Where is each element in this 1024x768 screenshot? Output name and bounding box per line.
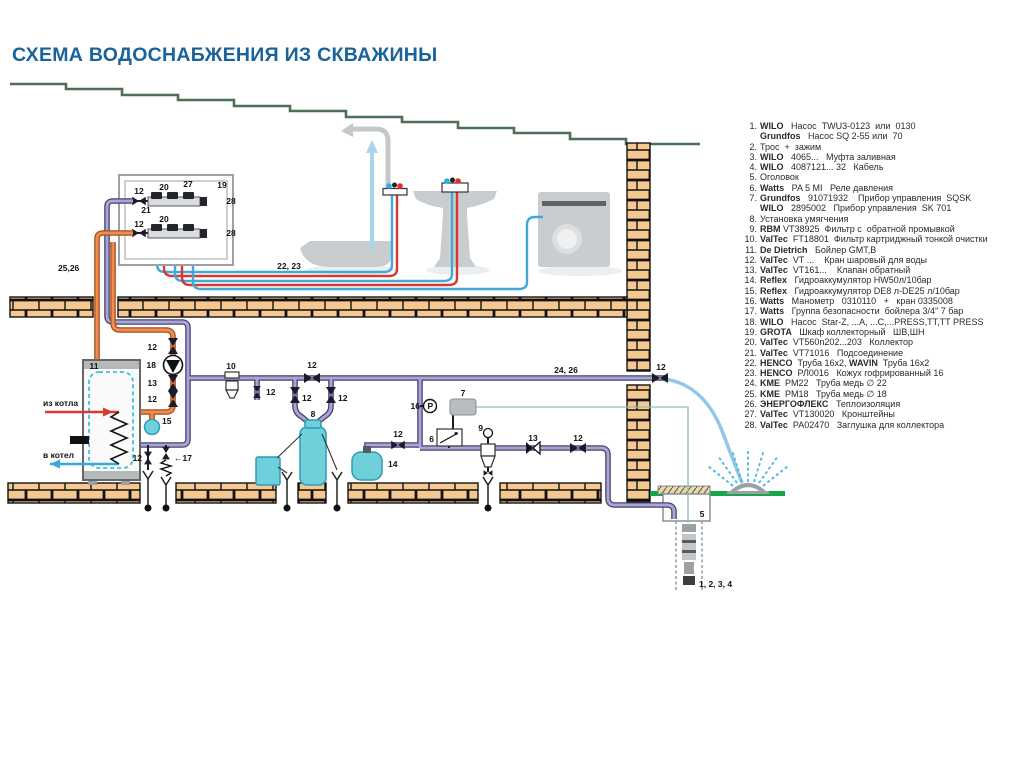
legend-item-text: Watts PA 5 MI Реле давления: [760, 183, 893, 193]
diagram-label: 1, 2, 3, 4: [699, 579, 732, 589]
legend-item-number: 4.: [740, 162, 757, 172]
legend-item-text: Grundfos 91071932 Прибор управления SQSK…: [760, 193, 971, 214]
legend-item: 23.HENCO РЛ0016 Кожух гофрированный 16: [740, 368, 1024, 378]
legend-item: 12.ValTec VT ... Кран шаровый для воды: [740, 255, 1024, 265]
diagram-label: 10: [226, 361, 236, 371]
legend-item: 10.ValTec FT18801 Фильтр картриджный тон…: [740, 234, 1024, 244]
legend-item-number: 19.: [740, 327, 757, 337]
legend-item-number: 10.: [740, 234, 757, 244]
diagram-label: ←17: [174, 453, 192, 463]
legend-item-number: 26.: [740, 399, 757, 409]
legend-item: 7.Grundfos 91071932 Прибор управления SQ…: [740, 193, 1024, 214]
legend-item: 9.RBM VT38925 Фильтр с обратной промывко…: [740, 224, 1024, 234]
legend-item: 6.Watts PA 5 MI Реле давления: [740, 183, 1024, 193]
legend-item: 18.WILO Насос Star-Z, ...A, ...C,...PRES…: [740, 317, 1024, 327]
diagram-label: из котла: [43, 398, 78, 408]
sink-pedestal: [434, 215, 476, 267]
legend-item-number: 16.: [740, 296, 757, 306]
hydro-accumulator-14: [352, 452, 382, 480]
floor-lower-4: [348, 483, 478, 503]
backwash-filter-9: [481, 429, 495, 476]
diagram-label: 13: [148, 378, 158, 388]
legend-item-text: HENCO Труба 16х2, WAVIN Труба 16х2: [760, 358, 929, 368]
diagram-label: 22, 23: [277, 261, 301, 271]
safety-valve-icon: [162, 447, 170, 460]
softener-head: [305, 420, 321, 428]
shower-head: [341, 123, 353, 137]
legend-item-text: KME PM22 Труба медь ∅ 22: [760, 378, 887, 388]
diagram-label: P: [427, 401, 433, 411]
diagram-label: 12: [338, 393, 348, 403]
legend-item-number: 6.: [740, 183, 757, 193]
diagram-label: в котел: [43, 450, 74, 460]
garden-hose: [664, 379, 742, 483]
legend-item-number: 22.: [740, 358, 757, 368]
diagram-label: 28: [226, 196, 236, 206]
diagram-label: 12: [307, 360, 317, 370]
diagram-label: 15: [162, 416, 172, 426]
legend-item: 13.ValTec VT161... Клапан обратный: [740, 265, 1024, 275]
diagram-label: 12: [148, 342, 158, 352]
legend-item-text: Установка умягчения: [760, 214, 848, 224]
legend-item-text: WILO 4065... Муфта заливная: [760, 152, 896, 162]
fixtures: [300, 123, 622, 276]
sink-bowl: [413, 191, 497, 215]
diagram-label: 25,26: [58, 263, 80, 273]
legend-item: 19.GROTA Шкаф коллекторный ШВ,ШН: [740, 327, 1024, 337]
legend-item: 21.ValTec VT71016 Подсоединение: [740, 348, 1024, 358]
legend-item: 2.Трос + зажим: [740, 142, 1024, 152]
legend-item-text: ValTec VT560n202...203 Коллектор: [760, 337, 913, 347]
parts-legend: 1.WILO Насос TWU3-0123 или 0130Grundfos …: [740, 121, 1024, 430]
softener-tank: [300, 427, 326, 485]
cartridge-filter-10: [225, 372, 239, 398]
legend-item: 11.De Dietrich Бойлер GMT,B: [740, 245, 1024, 255]
manifold-plug: [200, 229, 207, 238]
legend-item: 5.Оголовок: [740, 172, 1024, 182]
diagram-label: 12: [393, 429, 403, 439]
diagram-label: 24, 26: [554, 365, 578, 375]
legend-item: 1.WILO Насос TWU3-0123 или 0130Grundfos …: [740, 121, 1024, 142]
diagram-label: 12: [133, 453, 143, 463]
legend-item-text: Watts Манометр 0310110 + кран 0335008: [760, 296, 953, 306]
floor-lower-5: [500, 483, 601, 503]
brine-tank: [256, 457, 280, 485]
sensor-pocket: [70, 436, 89, 444]
outdoor-valve-icon: [652, 373, 668, 383]
roof-line: [10, 84, 700, 144]
legend-item-text: Трос + зажим: [760, 142, 821, 152]
spring-icon: [161, 460, 171, 476]
legend-item-number: 7.: [740, 193, 757, 214]
check-valve-13: [526, 442, 540, 454]
legend-item-text: ValTec VT71016 Подсоединение: [760, 348, 903, 358]
legend-item: 26.ЭНЕРГОФЛЕКС Теплоизоляция: [740, 399, 1024, 409]
legend-item: 3.WILO 4065... Муфта заливная: [740, 152, 1024, 162]
legend-item-text: Оголовок: [760, 172, 799, 182]
diagram-label: 27: [183, 179, 193, 189]
floor-upper-left: [10, 297, 93, 317]
legend-item: 15.Reflex Гидроаккумулятор DE8 л-DE25 л/…: [740, 286, 1024, 296]
legend-item: 16.Watts Манометр 0310110 + кран 0335008: [740, 296, 1024, 306]
ball-valve-icon: [290, 387, 300, 403]
legend-item: 8.Установка умягчения: [740, 214, 1024, 224]
diagram-label: 11: [90, 361, 99, 371]
legend-item-text: Watts Группа безопасности бойлера 3/4" 7…: [760, 306, 963, 316]
diagram-label: 14: [388, 459, 398, 469]
legend-item-text: Reflex Гидроаккумулятор HW50л/10бар: [760, 275, 932, 285]
legend-item-number: 27.: [740, 409, 757, 419]
diagram-label: 13: [528, 433, 538, 443]
shower-flow-arrow: [366, 140, 378, 153]
legend-item: 24.KME PM22 Труба медь ∅ 22: [740, 378, 1024, 388]
legend-item-text: Reflex Гидроаккумулятор DE8 л-DE25 л/10б…: [760, 286, 960, 296]
legend-item-number: 15.: [740, 286, 757, 296]
diagram-label: 21: [141, 205, 151, 215]
softener-unit: [256, 420, 337, 485]
floor-lower-3: [298, 483, 326, 503]
ball-valve-icon: [326, 387, 336, 403]
diagram-label: 8: [311, 409, 316, 419]
right-wall-upper: [627, 143, 650, 371]
floor-lower-1: [8, 483, 140, 503]
ball-valve-icon: [570, 443, 586, 453]
ball-valve-icon: [168, 338, 178, 354]
diagram-label: 7: [461, 388, 466, 398]
diagram-label: 12: [573, 433, 583, 443]
pressure-switch-6: [437, 429, 462, 448]
legend-item-text: De Dietrich Бойлер GMT,B: [760, 245, 876, 255]
legend-item: 4.WILO 4087121... 32 Кабель: [740, 162, 1024, 172]
diagram-label: 16: [411, 401, 421, 411]
legend-item: 17.Watts Группа безопасности бойлера 3/4…: [740, 306, 1024, 316]
sink-mixer: [442, 178, 468, 193]
legend-item-number: 5.: [740, 172, 757, 182]
right-wall-lower: [627, 385, 650, 502]
drain-valve-icon: [144, 452, 152, 465]
legend-item-number: 14.: [740, 275, 757, 285]
legend-item-number: 8.: [740, 214, 757, 224]
diagram-label: 20: [159, 214, 169, 224]
legend-item-text: RBM VT38925 Фильтр с обратной промывкой: [760, 224, 955, 234]
legend-item-text: ValTec FT18801 Фильтр картриджный тонкой…: [760, 234, 988, 244]
legend-item-text: ЭНЕРГОФЛЕКС Теплоизоляция: [760, 399, 900, 409]
legend-item-number: 13.: [740, 265, 757, 275]
expansion-vessel-15: [145, 420, 160, 435]
legend-item-number: 28.: [740, 420, 757, 430]
legend-item-number: 20.: [740, 337, 757, 347]
legend-item-text: WILO Насос Star-Z, ...A, ...C,...PRESS,T…: [760, 317, 983, 327]
diagram-label: 28: [226, 228, 236, 238]
legend-item-number: 2.: [740, 142, 757, 152]
ball-valve-icon: [391, 441, 405, 450]
diagram-label: 18: [147, 360, 157, 370]
legend-item: 25.KME PM18 Труба медь ∅ 18: [740, 389, 1024, 399]
ball-valve-icon: [168, 391, 178, 407]
legend-item-number: 9.: [740, 224, 757, 234]
legend-item: 20.ValTec VT560n202...203 Коллектор: [740, 337, 1024, 347]
check-valve-icon: [168, 375, 178, 391]
bathtub: [300, 241, 392, 267]
legend-item-text: ValTec PA02470 Заглушка для коллектора: [760, 420, 944, 430]
water-spray: [708, 448, 788, 486]
pit-cover-hatch: [658, 486, 710, 494]
legend-item-text: ValTec VT130020 Кронштейны: [760, 409, 895, 419]
page: СХЕМА ВОДОСНАБЖЕНИЯ ИЗ СКВАЖИНЫ: [0, 0, 1024, 768]
legend-item-text: ValTec VT161... Клапан обратный: [760, 265, 910, 275]
controller-7: [450, 399, 476, 430]
floor-upper-main: [118, 297, 627, 317]
diagram-label: 12: [134, 186, 144, 196]
legend-item-number: 21.: [740, 348, 757, 358]
sprinkler: [708, 448, 788, 493]
legend-item-number: 3.: [740, 152, 757, 162]
legend-item-text: WILO 4087121... 32 Кабель: [760, 162, 884, 172]
legend-item-number: 24.: [740, 378, 757, 388]
legend-item-number: 12.: [740, 255, 757, 265]
legend-item-number: 11.: [740, 245, 757, 255]
legend-item-number: 23.: [740, 368, 757, 378]
boiler-safety-group: [144, 445, 171, 476]
legend-item-text: GROTA Шкаф коллекторный ШВ,ШН: [760, 327, 925, 337]
diagram-label: 12: [148, 394, 158, 404]
legend-item: 22.HENCO Труба 16х2, WAVIN Труба 16х2: [740, 358, 1024, 368]
diagram-label: 5: [700, 509, 705, 519]
flow-arrow-left: [50, 460, 60, 469]
legend-item-number: 1.: [740, 121, 757, 142]
diagram-label: 12: [302, 393, 312, 403]
vessel-nipple: [363, 446, 371, 453]
legend-item-text: WILO Насос TWU3-0123 или 0130Grundfos На…: [760, 121, 915, 142]
legend-item: 28.ValTec PA02470 Заглушка для коллектор…: [740, 420, 1024, 430]
diagram-label: 6: [429, 434, 434, 444]
main-line-components: [225, 372, 668, 476]
diagram-label: 12: [656, 362, 666, 372]
legend-item-text: HENCO РЛ0016 Кожух гофрированный 16: [760, 368, 943, 378]
diagram-label: 9: [478, 423, 483, 433]
washing-machine: [538, 192, 610, 267]
diagram-label: 20: [159, 182, 169, 192]
diagram-label: 19: [217, 180, 227, 190]
legend-item-number: 18.: [740, 317, 757, 327]
legend-item: 27.ValTec VT130020 Кронштейны: [740, 409, 1024, 419]
bypass-valve-icon: [304, 373, 320, 383]
legend-item-number: 17.: [740, 306, 757, 316]
diagram-label: 12: [134, 219, 144, 229]
legend-item: 14.Reflex Гидроаккумулятор HW50л/10бар: [740, 275, 1024, 285]
manifold-plug: [200, 197, 207, 206]
boiler: [45, 360, 140, 485]
legend-item-text: KME PM18 Труба медь ∅ 18: [760, 389, 887, 399]
legend-item-number: 25.: [740, 389, 757, 399]
legend-item-text: ValTec VT ... Кран шаровый для воды: [760, 255, 927, 265]
floor-lower-2: [176, 483, 276, 503]
diagram-label: 12: [266, 387, 276, 397]
submersible-pump: [682, 524, 696, 585]
